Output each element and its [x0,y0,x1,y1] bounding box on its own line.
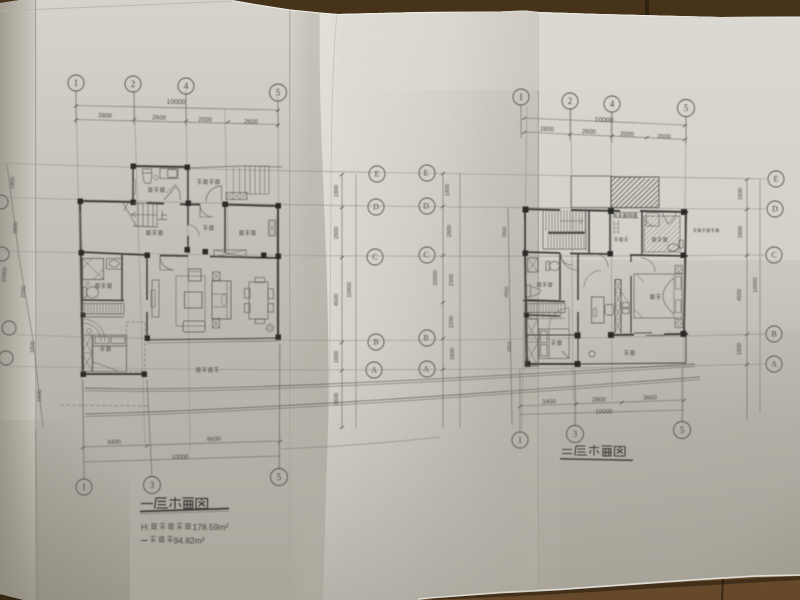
svg-text:2600: 2600 [582,128,597,136]
svg-text:1: 1 [82,482,87,492]
svg-text:2: 2 [568,96,573,106]
svg-text:2600: 2600 [657,133,672,141]
svg-text:B: B [423,334,428,343]
svg-text:1800: 1800 [334,185,340,197]
svg-text:4: 4 [610,99,615,109]
svg-text:2000: 2000 [620,131,635,139]
svg-text:178.59m²: 178.59m² [193,522,229,532]
svg-text:2300: 2300 [449,274,455,286]
svg-text:A: A [771,360,777,369]
svg-text:2800: 2800 [738,226,744,238]
svg-text:2800: 2800 [447,225,453,237]
svg-text:10900: 10900 [753,277,759,292]
svg-text:2800: 2800 [334,227,340,239]
svg-text:E: E [424,169,429,178]
svg-text:10900: 10900 [433,270,439,285]
svg-text:2600: 2600 [152,114,167,121]
svg-text:2200: 2200 [449,316,455,328]
svg-text:D: D [373,203,379,212]
svg-text:5: 5 [277,472,282,482]
svg-text:C: C [423,251,428,260]
svg-text:4500: 4500 [504,286,510,298]
svg-text:2800: 2800 [98,112,113,119]
svg-text:3: 3 [150,480,155,490]
svg-text:1800: 1800 [10,177,17,190]
svg-text:E: E [375,170,380,179]
svg-text:3400: 3400 [542,398,557,405]
svg-text:1800: 1800 [450,348,456,360]
svg-text:5: 5 [680,425,685,435]
svg-text:5: 5 [684,103,689,113]
svg-text:2: 2 [131,79,136,89]
svg-text:A: A [423,365,429,374]
svg-text:3600: 3600 [643,394,658,401]
svg-text:6600: 6600 [207,436,222,443]
svg-text:1: 1 [518,435,523,445]
svg-text:2800: 2800 [13,222,20,235]
svg-text:D: D [772,205,778,214]
svg-text:4500: 4500 [737,289,743,301]
svg-text:C: C [372,253,377,262]
svg-text:H:: H: [141,522,150,532]
svg-text:B: B [771,330,776,339]
svg-text:10900: 10900 [1,267,8,283]
svg-text:1800: 1800 [334,351,340,363]
svg-text:D: D [423,202,429,211]
svg-text:1: 1 [74,78,79,88]
svg-text:1600: 1600 [37,390,44,403]
svg-text:2600: 2600 [244,118,259,125]
svg-text:E: E [774,175,779,184]
svg-text:2200: 2200 [21,286,28,299]
svg-text:B: B [373,338,378,347]
svg-text:10000: 10000 [171,454,189,461]
svg-text:10000: 10000 [595,408,613,416]
svg-text:1600: 1600 [334,393,340,405]
svg-text:1800: 1800 [737,343,743,355]
svg-text:1: 1 [519,92,524,102]
svg-text:3: 3 [573,429,578,439]
svg-text:2800: 2800 [540,126,555,134]
svg-text:10000: 10000 [166,99,185,107]
svg-text:2800: 2800 [502,226,508,238]
svg-text:10000: 10000 [594,117,613,125]
svg-text:C: C [771,251,776,260]
svg-text:94.82m²: 94.82m² [174,536,205,546]
svg-text:1800: 1800 [507,341,513,353]
svg-text:A: A [371,366,377,375]
svg-text:4: 4 [184,81,189,91]
svg-text:1800: 1800 [30,341,37,354]
svg-text:2800: 2800 [592,396,607,403]
svg-text:2000: 2000 [198,116,213,123]
svg-text:1800: 1800 [445,184,451,196]
svg-text:3400: 3400 [107,439,122,446]
svg-text:4500: 4500 [334,294,340,306]
svg-text:5: 5 [276,88,281,98]
svg-text:1800: 1800 [738,188,744,200]
svg-text:10900: 10900 [347,282,353,297]
